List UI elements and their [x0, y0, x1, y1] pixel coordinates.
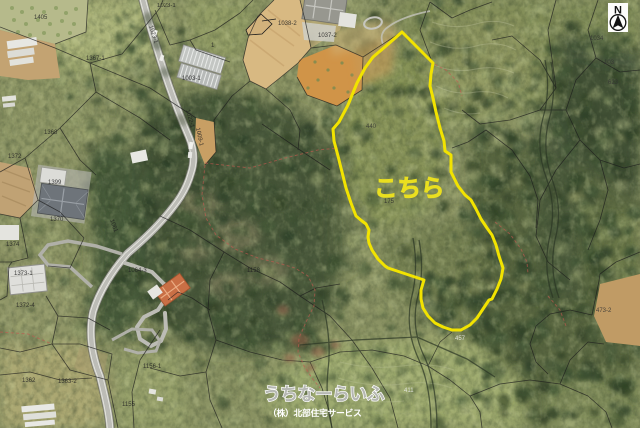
- svg-text:1367-1: 1367-1: [86, 56, 105, 62]
- svg-text:1064-3: 1064-3: [128, 268, 147, 274]
- svg-text:1023-1: 1023-1: [157, 3, 176, 9]
- svg-text:うちなーらいふ: うちなーらいふ: [263, 384, 385, 404]
- svg-text:623: 623: [608, 80, 619, 86]
- svg-text:1363-2: 1363-2: [58, 379, 77, 385]
- svg-text:1372-4: 1372-4: [16, 303, 35, 309]
- svg-text:1372: 1372: [8, 154, 22, 160]
- svg-text:1034: 1034: [590, 36, 604, 42]
- svg-text:1155: 1155: [122, 402, 136, 408]
- svg-text:1038-2: 1038-2: [278, 21, 297, 27]
- svg-text:1399: 1399: [48, 180, 62, 186]
- svg-text:1362: 1362: [22, 378, 36, 384]
- svg-text:（株）北部住宅サービス: （株）北部住宅サービス: [268, 407, 362, 418]
- svg-text:473-2: 473-2: [596, 308, 612, 314]
- svg-text:411: 411: [404, 388, 414, 394]
- svg-text:1003-1: 1003-1: [182, 76, 201, 82]
- svg-text:1037-2: 1037-2: [318, 33, 337, 39]
- svg-text:1156-1: 1156-1: [143, 364, 162, 370]
- svg-text:440: 440: [366, 124, 377, 130]
- svg-text:1374: 1374: [6, 242, 20, 248]
- svg-text:1405: 1405: [34, 15, 48, 21]
- svg-text:1158: 1158: [247, 268, 261, 274]
- svg-text:こちら: こちら: [374, 175, 445, 201]
- svg-text:457: 457: [455, 336, 466, 342]
- svg-text:1370: 1370: [50, 217, 64, 223]
- svg-text:1368: 1368: [44, 130, 58, 136]
- svg-text:1373-1: 1373-1: [14, 271, 33, 277]
- svg-text:103: 103: [604, 60, 615, 66]
